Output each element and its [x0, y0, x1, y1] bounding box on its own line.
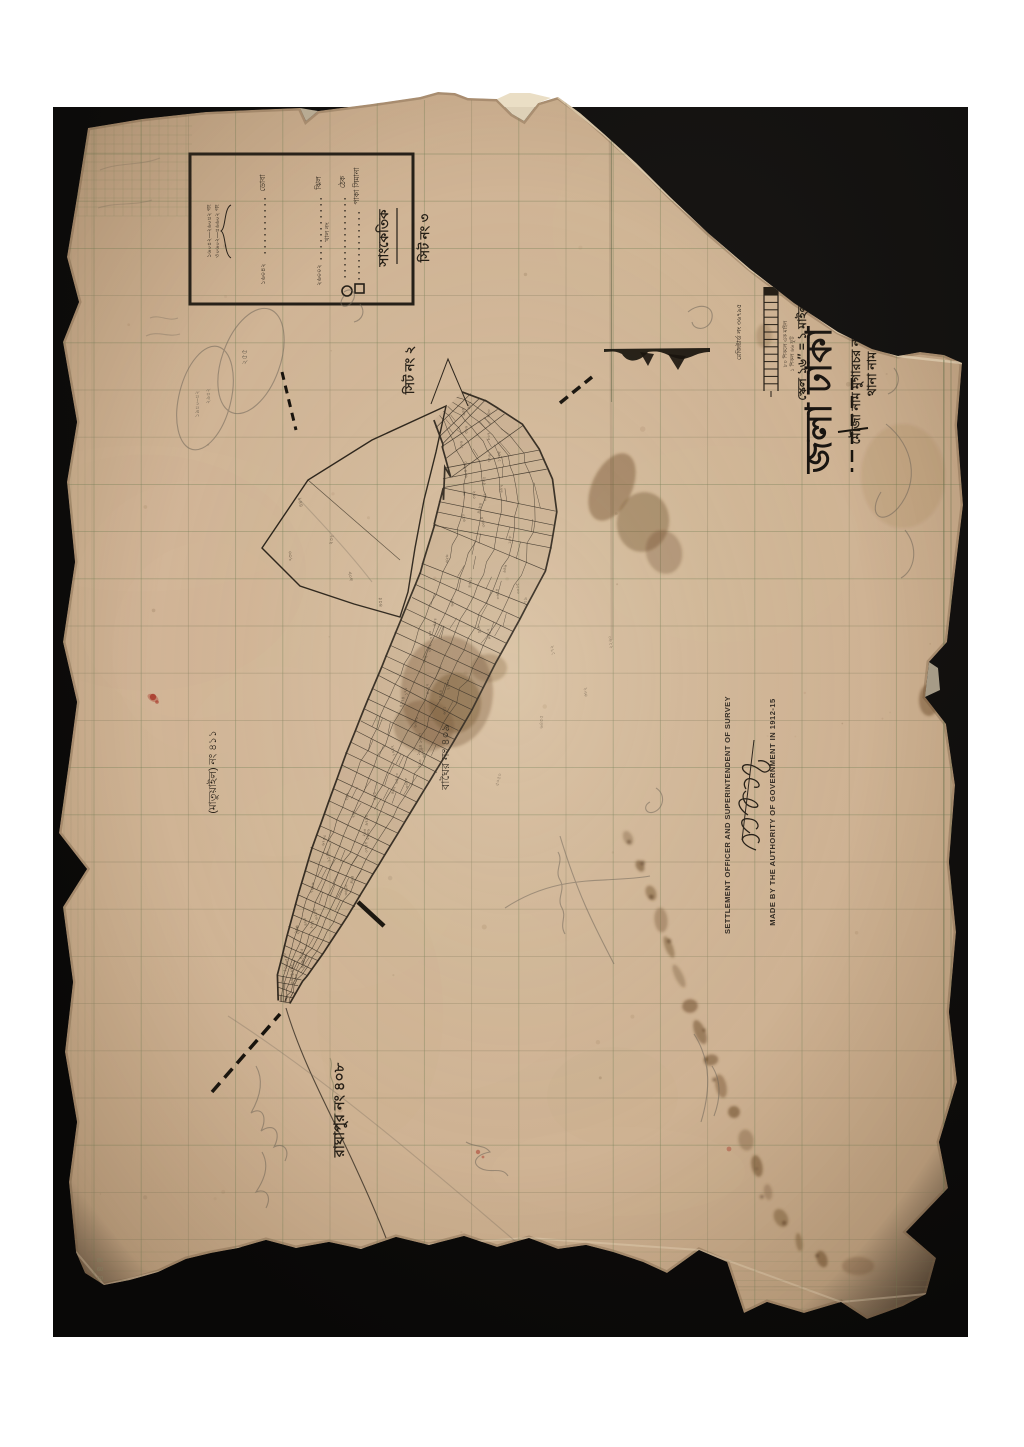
- scanned-survey-map-page: ৬৪৮৫৪২৩১৬৬২০১০৬৮০৭২৫০৭৭৬১৭৬৫৬১৫৫৩৩৯৮২০৯২…: [0, 0, 1024, 1447]
- survey-map-scan: ৬৪৮৫৪২৩১৬৬২০১০৬৮০৭২৫০৭৭৬১৭৬৫৬১৫৫৩৩৯৮২০৯২…: [0, 0, 1024, 1447]
